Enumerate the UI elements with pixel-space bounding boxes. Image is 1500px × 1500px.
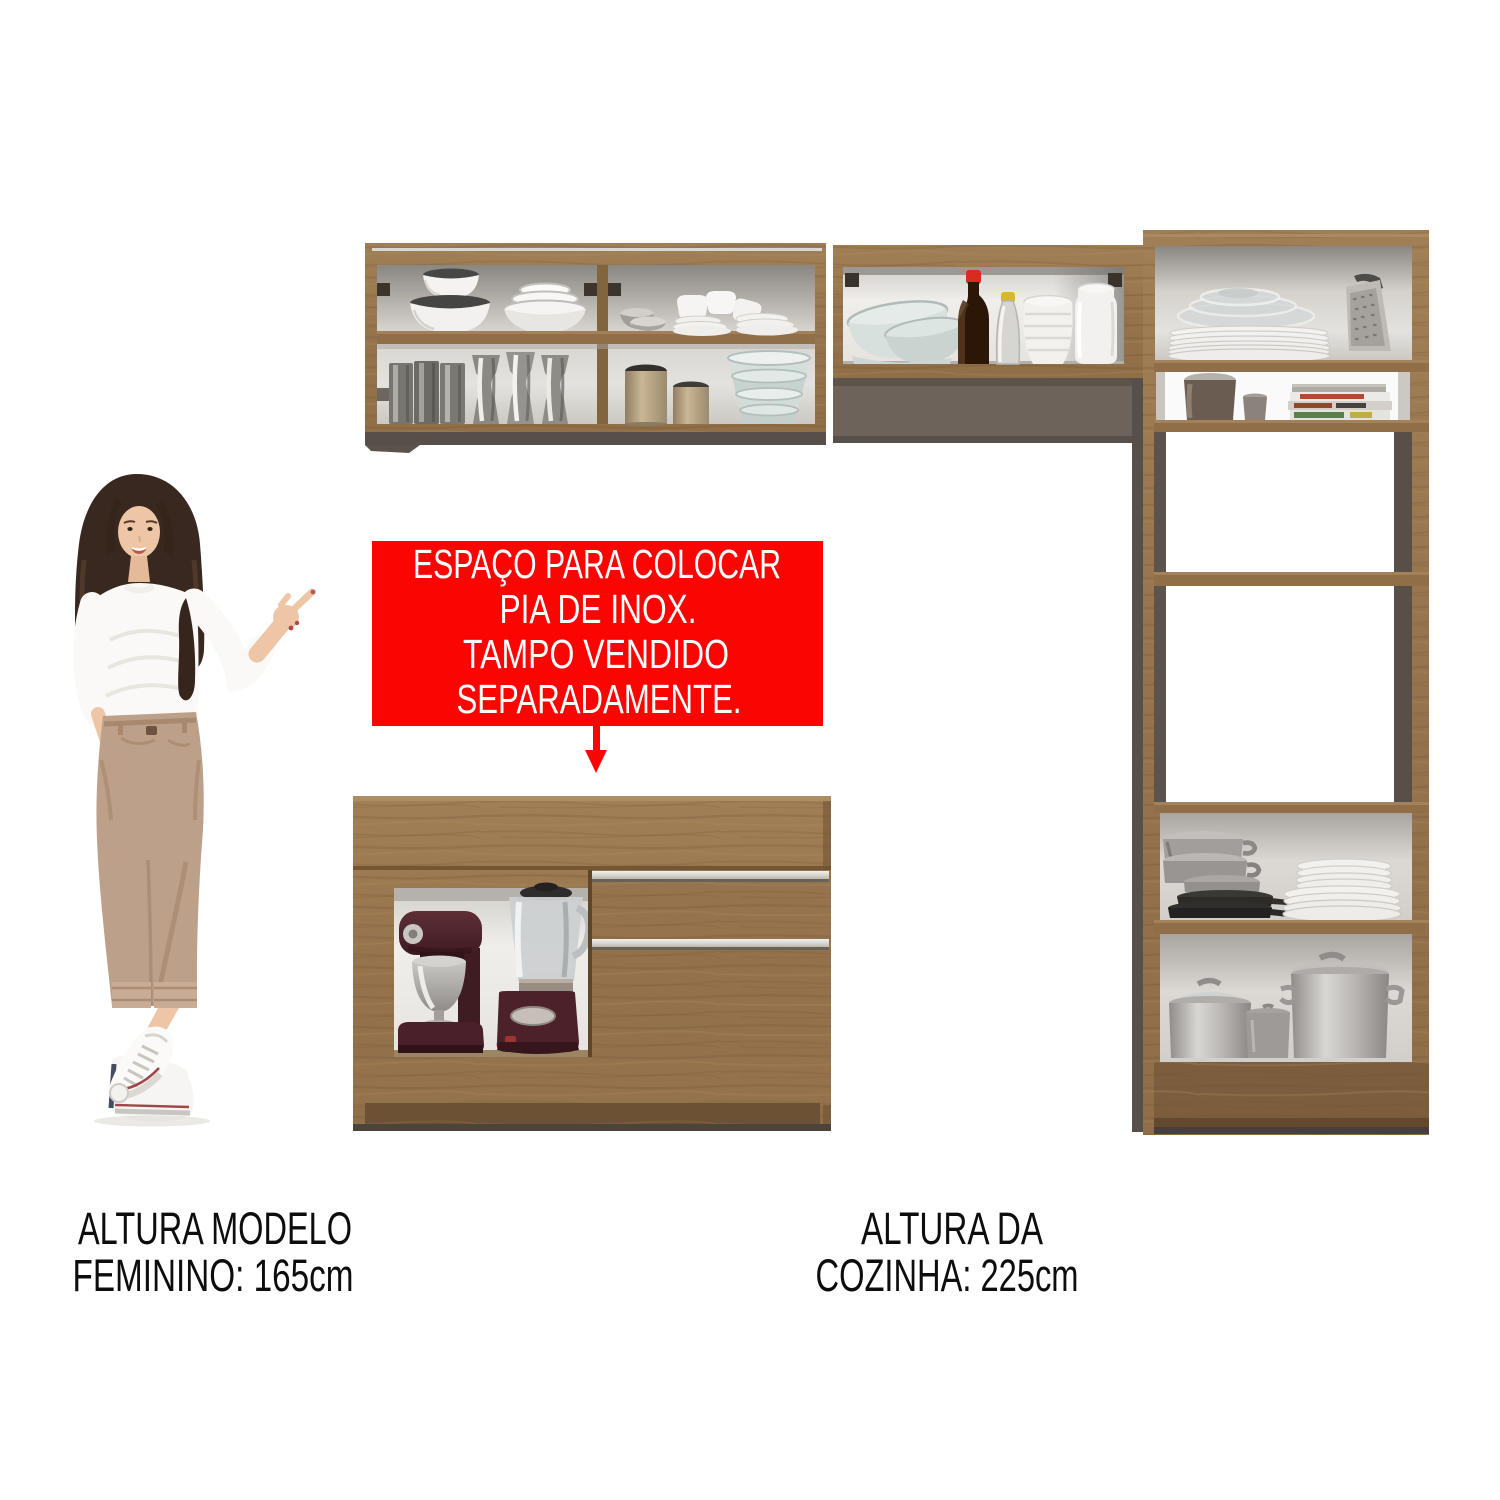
svg-text:SEPARADAMENTE.: SEPARADAMENTE. [457,676,742,722]
svg-text:COZINHA: 225cm: COZINHA: 225cm [816,1250,1079,1301]
svg-text:FEMININO: 165cm: FEMININO: 165cm [73,1250,354,1301]
svg-text:ALTURA MODELO: ALTURA MODELO [78,1203,352,1254]
svg-text:TAMPO VENDIDO: TAMPO VENDIDO [463,631,729,677]
svg-text:PIA DE INOX.: PIA DE INOX. [500,586,697,632]
svg-text:ESPAÇO PARA COLOCAR: ESPAÇO PARA COLOCAR [413,541,781,587]
svg-text:ALTURA DA: ALTURA DA [861,1203,1043,1254]
